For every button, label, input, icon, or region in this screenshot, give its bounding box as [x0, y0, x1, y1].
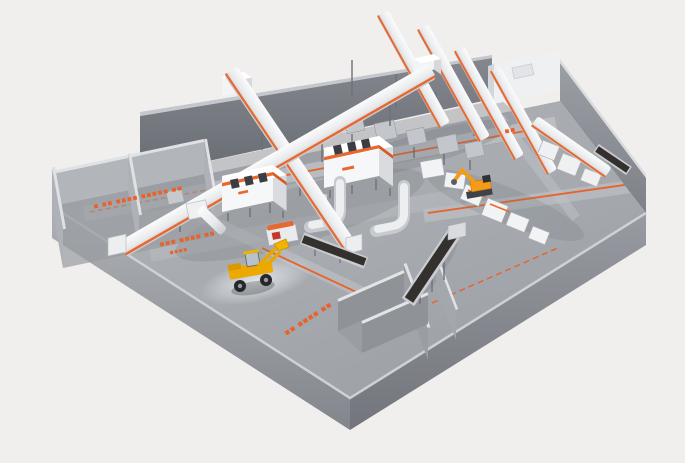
- plant-render: ■ ■■ ■■■■ ■■■■■ ■■ ■■■ ■■■■ ■■ ■■■■ ■■ ■…: [0, 0, 685, 463]
- plant-scene: ■ ■■ ■■■■ ■■■■■ ■■ ■■■ ■■■■ ■■ ■■■■ ■■ ■…: [0, 0, 685, 463]
